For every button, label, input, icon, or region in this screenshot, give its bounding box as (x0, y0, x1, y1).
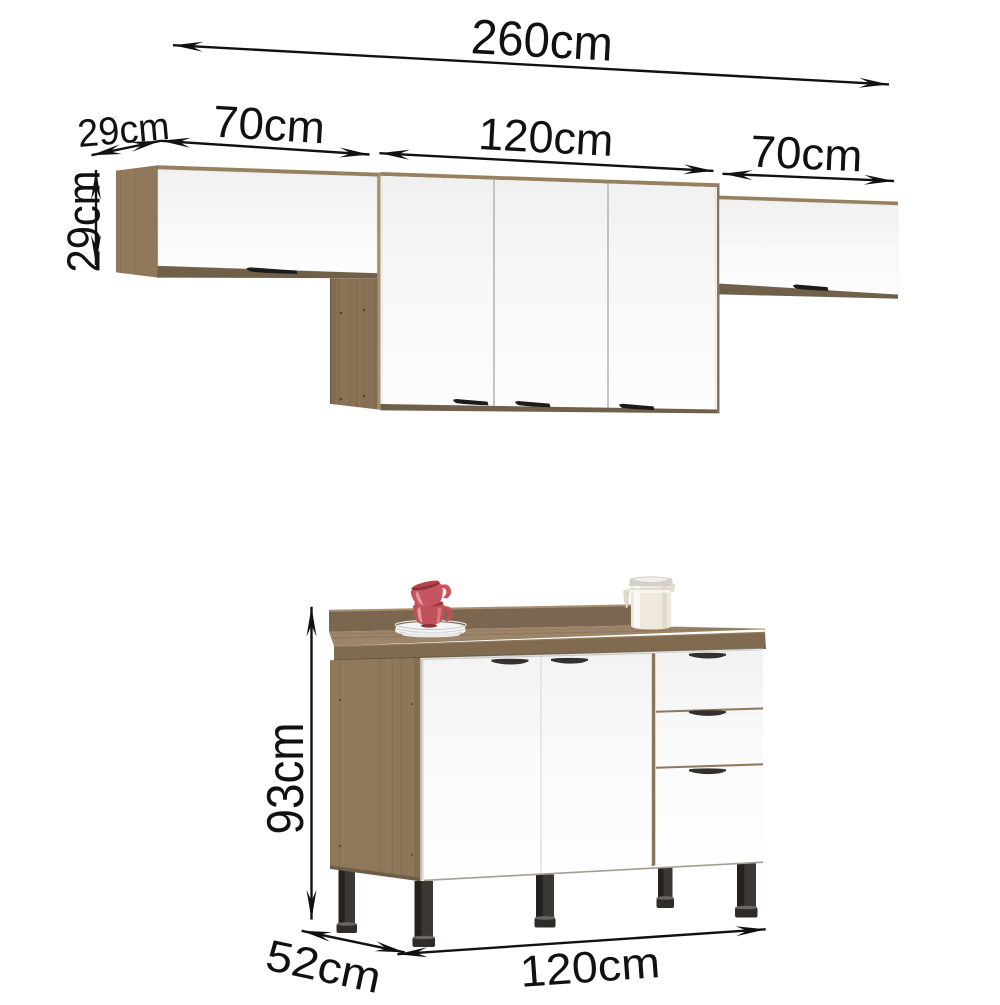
svg-text:120cm: 120cm (518, 938, 661, 997)
svg-text:93cm: 93cm (257, 723, 315, 835)
svg-text:120cm: 120cm (477, 108, 614, 166)
svg-text:260cm: 260cm (470, 10, 615, 72)
svg-text:70cm: 70cm (212, 96, 327, 154)
svg-text:29cm: 29cm (76, 105, 171, 156)
svg-text:70cm: 70cm (749, 126, 863, 182)
svg-text:29cm: 29cm (58, 171, 110, 273)
